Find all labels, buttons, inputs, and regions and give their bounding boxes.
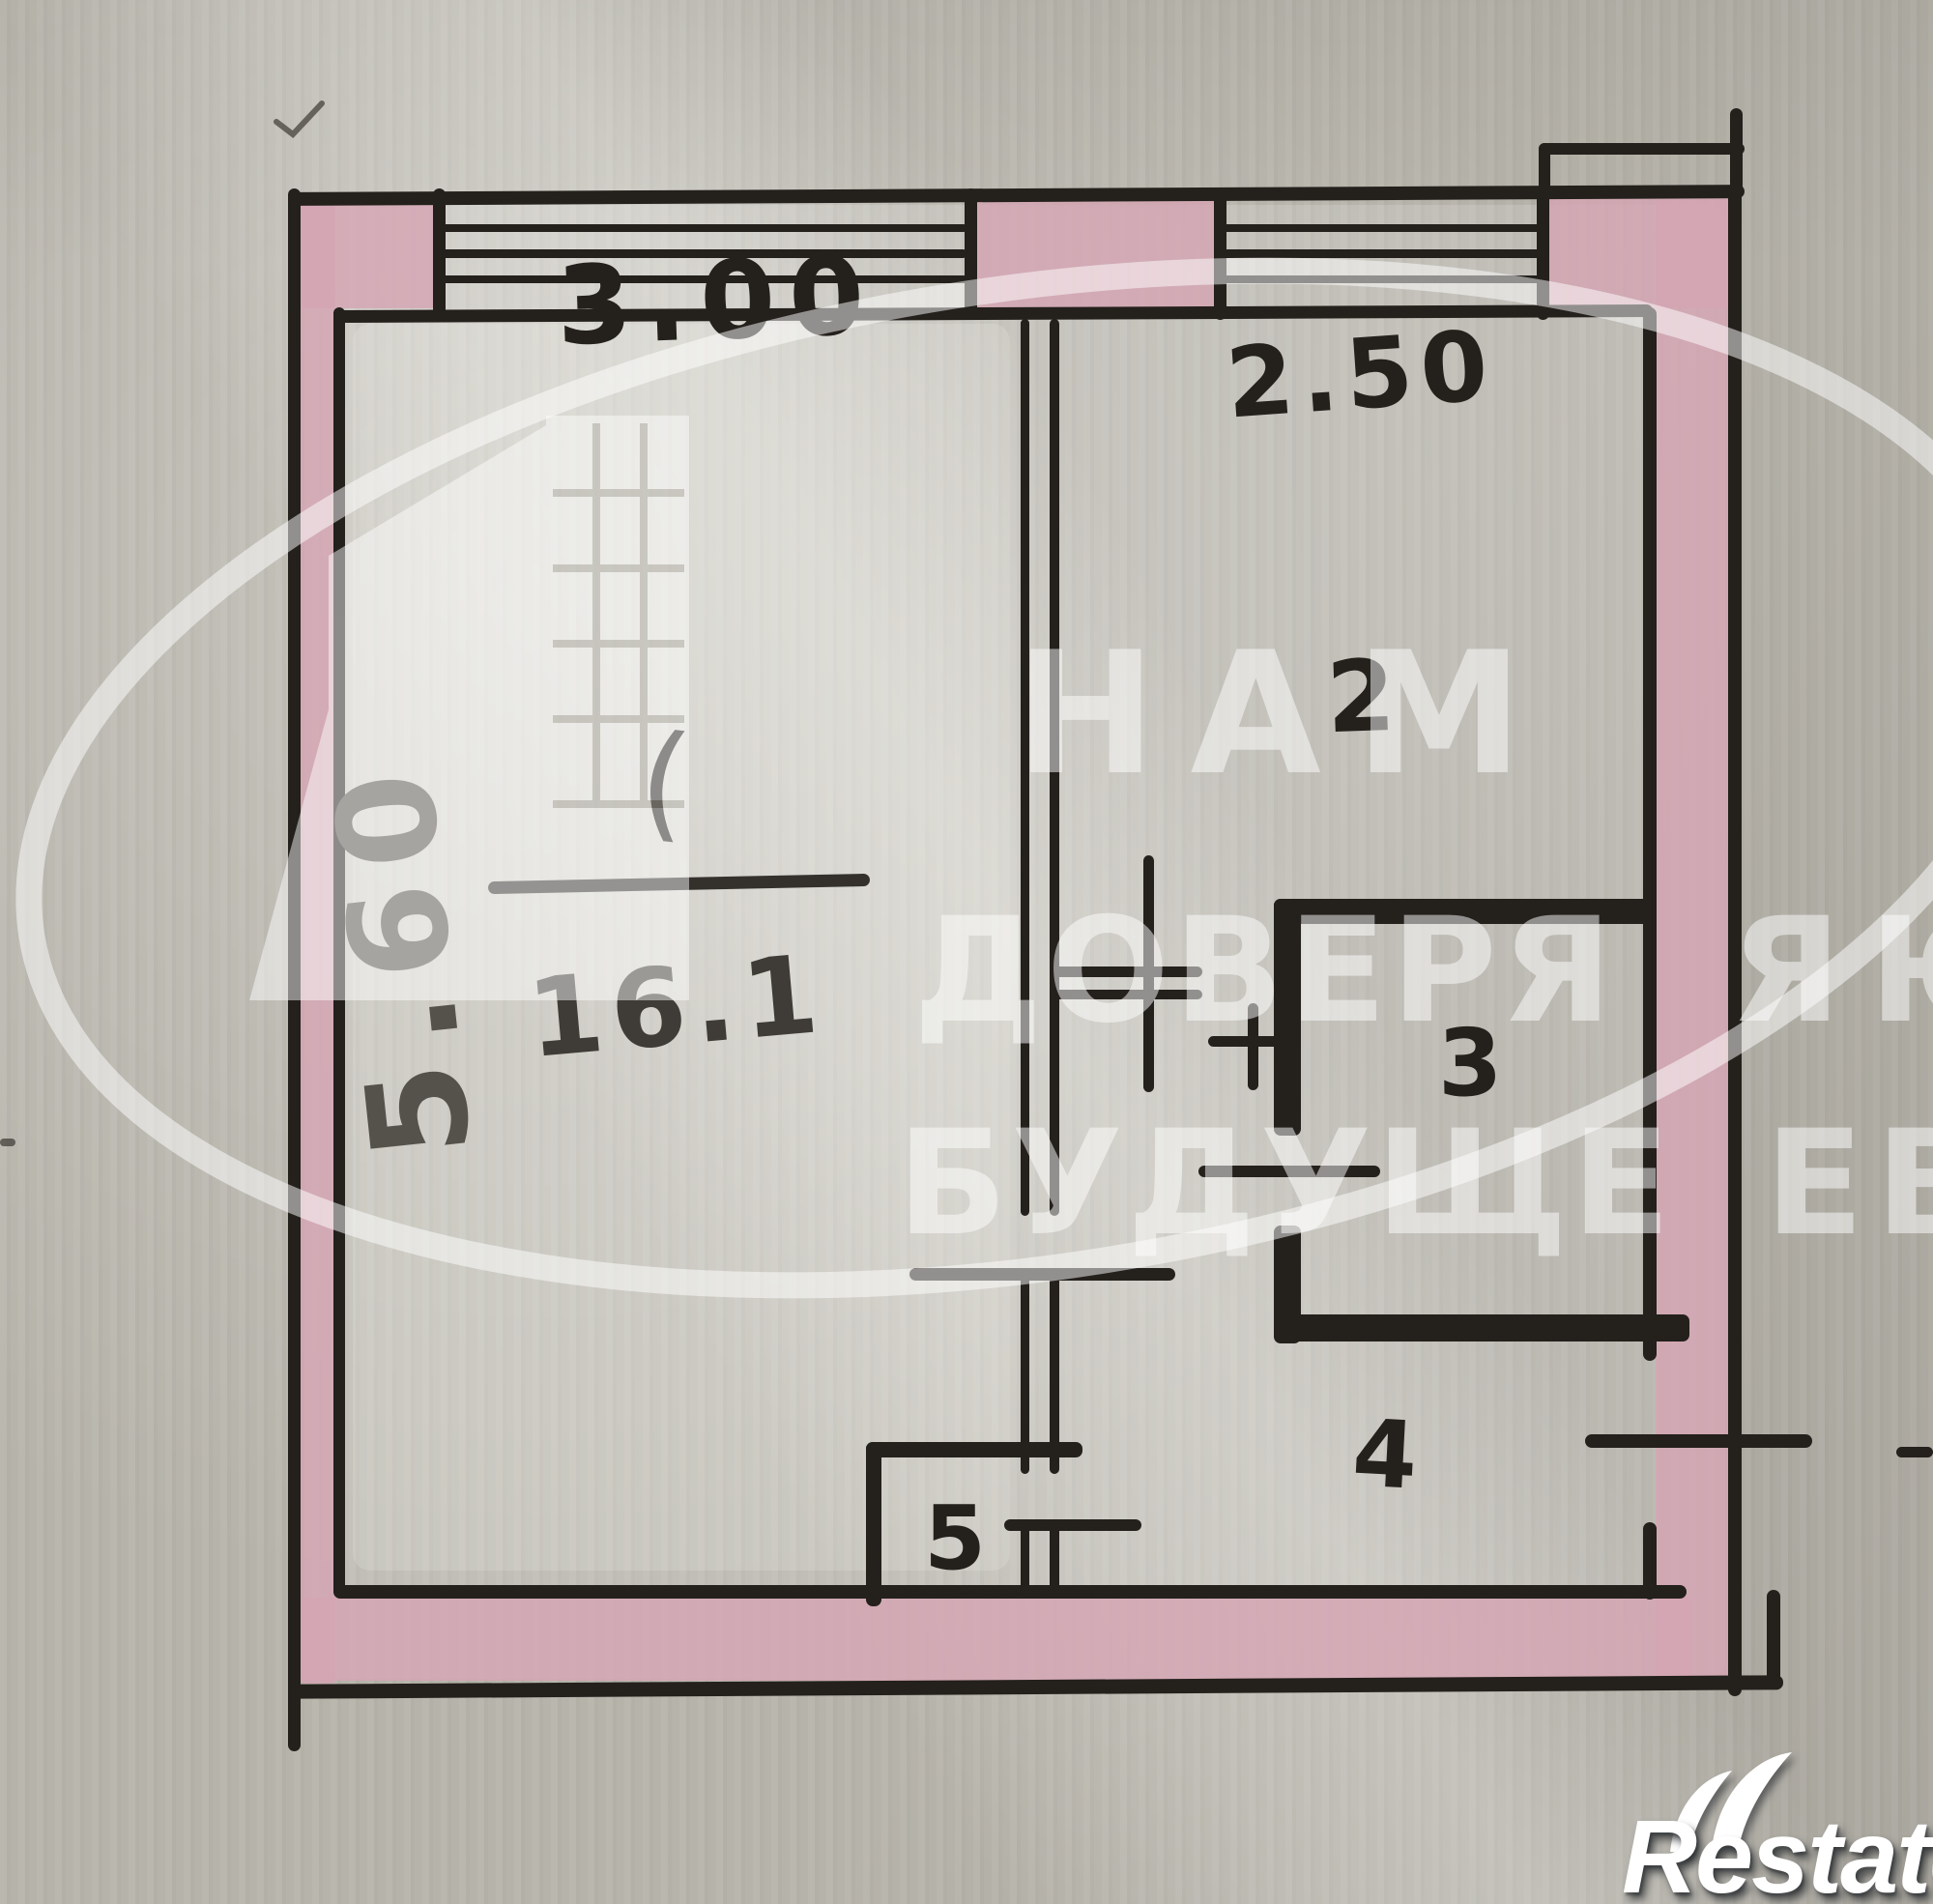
floor-plan-photo: 3.00 2.50 5.60 ( 16.1 2 3 4 5 xyxy=(0,0,1933,1904)
entrance-door-tick xyxy=(1585,1434,1812,1448)
main-wall-left-line-bottom xyxy=(1021,1525,1029,1595)
left-edge-dash xyxy=(0,1139,15,1146)
room1-area-label: 16.1 xyxy=(524,940,830,1074)
wall-fill-top-middle-pier xyxy=(974,198,1216,308)
dim-top-left: 3.00 xyxy=(555,242,880,361)
entrance-edge-dash xyxy=(1896,1447,1933,1457)
kitchen-wall-line-2 xyxy=(1050,990,1202,999)
bottom-right-corner-stub xyxy=(1767,1590,1780,1687)
right-wall-outer-line xyxy=(1728,188,1742,1696)
room2-number: 2 xyxy=(1325,648,1398,748)
dim-top-right: 2.50 xyxy=(1223,317,1498,432)
top-right-raised-line xyxy=(1539,143,1745,155)
main-wall-right-line-bottom xyxy=(1050,1525,1059,1595)
top-right-overshoot xyxy=(1730,108,1743,200)
watermark-edge-fragment-3: ЕВ xyxy=(1765,1111,1933,1256)
room3-left-wall-upper xyxy=(1274,899,1301,1136)
window-b-glazing-1 xyxy=(1220,224,1541,232)
window-b-glazing-2 xyxy=(1220,249,1541,258)
door-tick-kitchen-vertical xyxy=(1143,855,1154,1092)
room4-number: 4 xyxy=(1350,1406,1420,1502)
door-tick-room5 xyxy=(1004,1519,1141,1531)
door-tick-room1 xyxy=(909,1268,1175,1281)
right-wall-inner-line-upper xyxy=(1643,307,1657,1361)
main-wall-right-line-top xyxy=(1050,319,1059,1216)
room3-bottom-wall xyxy=(1274,1314,1689,1341)
wall-fill-bottom-wall xyxy=(301,1598,1692,1681)
room5-number: 5 xyxy=(924,1494,986,1583)
room3-number: 3 xyxy=(1437,1016,1503,1110)
main-wall-left-line-top xyxy=(1021,319,1029,1216)
watermark-edge-fragment-2: ЯЮ xyxy=(1730,899,1933,1044)
dim-left-side: 5.60 xyxy=(316,749,493,1165)
room3-top-wall xyxy=(1274,899,1655,924)
window-a-glazing-1 xyxy=(440,224,967,232)
door-cross-vertical xyxy=(1248,1003,1258,1090)
wall-fill-right-wall xyxy=(1656,200,1729,1681)
door-tick-room3 xyxy=(1198,1166,1380,1177)
left-wall-outer-line xyxy=(288,188,301,1751)
window-b-glazing-3 xyxy=(1220,275,1541,283)
room5-top-wall xyxy=(866,1442,1082,1457)
check-mark-icon xyxy=(276,103,322,134)
bottom-wall-inner-line xyxy=(333,1585,1687,1599)
logo-text: Restate xyxy=(1622,1796,1933,1904)
kitchen-wall-line-1 xyxy=(1050,966,1202,977)
room5-left-wall xyxy=(866,1442,881,1606)
